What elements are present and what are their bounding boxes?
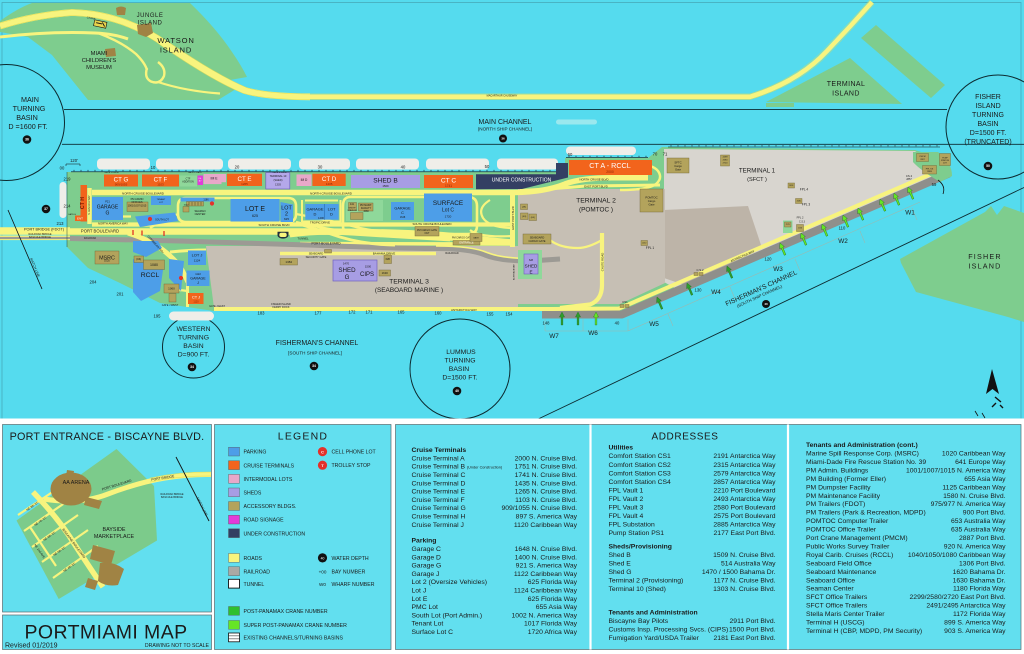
svg-text:BAYSIDE: BAYSIDE [103, 527, 126, 533]
svg-text:PM Admin. Buildings: PM Admin. Buildings [806, 467, 869, 474]
svg-text:Lot E: Lot E [412, 596, 428, 603]
svg-text:34: 34 [190, 365, 194, 369]
svg-text:PM Trailers (Park & Recreatio: PM Trailers (Park & Recreation, MDPD) [806, 510, 926, 517]
svg-text:GATE G WEST: GATE G WEST [104, 171, 120, 174]
svg-text:C.S.2: C.S.2 [697, 268, 704, 272]
svg-text:10: 10 [151, 165, 156, 170]
svg-text:MAIN: MAIN [21, 95, 39, 104]
svg-text:1103 N. Cruise Blvd.: 1103 N. Cruise Blvd. [515, 497, 577, 504]
svg-text:Garage D: Garage D [412, 554, 442, 561]
svg-text:1120: 1120 [193, 300, 199, 303]
svg-text:ENT: ENT [77, 217, 83, 221]
svg-text:2911 Port Blvd.: 2911 Port Blvd. [730, 618, 776, 625]
svg-text:36: 36 [25, 138, 29, 142]
svg-text:441: 441 [350, 203, 355, 206]
svg-text:RAILROAD: RAILROAD [445, 251, 458, 255]
svg-text:20: 20 [235, 165, 240, 170]
svg-text:P21: P21 [105, 200, 110, 204]
svg-text:2315 Antarctica Way: 2315 Antarctica Way [713, 462, 776, 469]
svg-text:SOUTH CRUISE BOULEVARD: SOUTH CRUISE BOULEVARD [413, 222, 452, 226]
svg-text:2000: 2000 [606, 170, 614, 174]
svg-text:WATSON: WATSON [157, 36, 194, 45]
svg-text:NORTH CRUISE BOULEVARD: NORTH CRUISE BOULEVARD [122, 191, 165, 195]
svg-text:ADDITION: ADDITION [182, 181, 194, 184]
svg-text:SFCT Office Trailers: SFCT Office Trailers [806, 594, 868, 601]
svg-text:Gate: Gate [648, 202, 655, 206]
svg-text:Royal Carib. Cruises (RCCL): Royal Carib. Cruises (RCCL) [806, 552, 893, 559]
svg-text:1124: 1124 [194, 259, 201, 263]
svg-text:641 Europe Way: 641 Europe Way [955, 459, 1006, 466]
svg-text:625 Florida Way: 625 Florida Way [528, 596, 578, 603]
svg-text:S. AMERICA WAY: S. AMERICA WAY [88, 195, 91, 215]
svg-text:Comfort Station CS4: Comfort Station CS4 [609, 479, 672, 486]
svg-text:Sheds/Provisioning: Sheds/Provisioning [609, 544, 672, 551]
svg-text:(TRUNCATED): (TRUNCATED) [964, 139, 1011, 146]
svg-text:975/977 N. America Way: 975/977 N. America Way [931, 501, 1007, 508]
svg-text:1500 Port Blvd.: 1500 Port Blvd. [729, 627, 776, 634]
svg-text:PORT BRIDGE (FDOT): PORT BRIDGE (FDOT) [24, 228, 65, 232]
svg-text:117: 117 [199, 181, 202, 183]
svg-text:(63): (63) [522, 216, 526, 218]
svg-text:172: 172 [349, 310, 357, 315]
svg-text:ISLAND: ISLAND [160, 46, 192, 55]
svg-text:UNDER CONSTRUCTION: UNDER CONSTRUCTION [492, 178, 552, 184]
svg-text:TENANT: TENANT [157, 198, 166, 201]
svg-text:AA ARENA: AA ARENA [63, 480, 90, 486]
svg-text:CIPS: CIPS [360, 272, 374, 278]
svg-text:Miami-Dade Fire Rescue Station: Miami-Dade Fire Rescue Station No. 39 [806, 459, 926, 466]
svg-text:SOUTH CRUISE BLVD: SOUTH CRUISE BLVD [258, 223, 290, 227]
svg-text:FPL Substation: FPL Substation [609, 522, 655, 529]
svg-text:34: 34 [312, 364, 316, 368]
svg-text:SHED: SHED [338, 267, 356, 274]
svg-text:BASIN: BASIN [16, 113, 38, 122]
svg-text:W1: W1 [905, 210, 915, 217]
svg-text:1470: 1470 [343, 262, 350, 266]
svg-text:1384: 1384 [285, 260, 292, 264]
svg-text:IM D: IM D [301, 178, 308, 182]
svg-text:1103: 1103 [157, 182, 164, 186]
svg-text:C.S.3: C.S.3 [799, 221, 806, 224]
svg-text:FISHER: FISHER [975, 94, 1001, 101]
svg-text:2000 N. Cruise Blvd.: 2000 N. Cruise Blvd. [515, 455, 577, 462]
svg-text:PORT BOULEVARD: PORT BOULEVARD [311, 241, 341, 245]
svg-text:2299: 2299 [723, 157, 729, 159]
svg-text:Lot C: Lot C [442, 208, 454, 214]
svg-text:WESTERN: WESTERN [177, 326, 211, 333]
svg-text:(SFCT ): (SFCT ) [747, 177, 767, 183]
svg-text:635 Australia Way: 635 Australia Way [951, 527, 1006, 534]
svg-text:TERMINAL: TERMINAL [827, 81, 866, 88]
svg-text:Garage G: Garage G [412, 563, 442, 570]
svg-text:C: C [321, 449, 324, 454]
svg-text:[SOUTH SHIP CHANNEL]: [SOUTH SHIP CHANNEL] [288, 351, 342, 356]
svg-text:GATE: GATE [473, 236, 479, 239]
svg-text:Surface Lot C: Surface Lot C [412, 629, 454, 636]
svg-text:CELL PHONE LOT: CELL PHONE LOT [332, 450, 377, 456]
svg-text:(04): (04) [136, 257, 141, 261]
svg-text:W7: W7 [549, 333, 559, 340]
svg-text:171: 171 [366, 310, 374, 315]
svg-text:Cruise Terminal G: Cruise Terminal G [412, 505, 466, 512]
svg-text:Public Works Survey Trailer: Public Works Survey Trailer [806, 543, 890, 550]
svg-text:ACCESSORY BLDGS.: ACCESSORY BLDGS. [244, 504, 297, 510]
svg-text:CS1: CS1 [622, 300, 628, 304]
svg-text:1306 Port Blvd.: 1306 Port Blvd. [959, 560, 1006, 567]
svg-text:2575: 2575 [786, 224, 790, 226]
svg-text:2720: 2720 [723, 162, 729, 164]
svg-text:1741: 1741 [445, 184, 452, 188]
svg-text:1741 N. Cruise Blvd.: 1741 N. Cruise Blvd. [515, 472, 577, 479]
svg-text:EXISTING CHANNELS/TURNING BASI: EXISTING CHANNELS/TURNING BASINS [244, 636, 344, 642]
svg-text:148: 148 [543, 321, 551, 326]
svg-text:214: 214 [64, 204, 72, 209]
svg-text:BASIN: BASIN [183, 343, 203, 350]
svg-text:1122: 1122 [195, 272, 201, 276]
svg-text:Cruise Terminal A: Cruise Terminal A [412, 455, 466, 462]
svg-text:CT H: CT H [80, 197, 86, 209]
svg-text:D=1500 FT.: D=1500 FT. [442, 375, 477, 382]
svg-text:1080: 1080 [150, 263, 158, 267]
svg-text:G: G [345, 274, 350, 281]
svg-text:SHED: SHED [525, 264, 538, 269]
svg-text:DRAWING NOT TO SCALE: DRAWING NOT TO SCALE [145, 643, 210, 649]
svg-text:NORTH CRUISE BOULEVARD: NORTH CRUISE BOULEVARD [310, 191, 353, 195]
svg-text:2857 Antarctica Way: 2857 Antarctica Way [713, 479, 776, 486]
svg-text:ROADS: ROADS [244, 556, 263, 562]
svg-text:1500: 1500 [365, 265, 372, 269]
svg-text:BAY NUMBER: BAY NUMBER [332, 569, 366, 575]
svg-text:Comfort Station CS1: Comfort Station CS1 [609, 453, 672, 460]
svg-text:195: 195 [154, 314, 162, 319]
svg-text:Parking: Parking [412, 538, 437, 545]
svg-text:FPL Vault 1: FPL Vault 1 [609, 487, 644, 494]
svg-text:WATER DEPTH: WATER DEPTH [332, 556, 369, 562]
svg-text:NORTH CRUISE BLVD: NORTH CRUISE BLVD [579, 178, 608, 182]
svg-text:ANTARCTICA WAY: ANTARCTICA WAY [451, 308, 477, 312]
svg-text:FPL SS: FPL SS [926, 168, 934, 170]
svg-text:30: 30 [318, 165, 323, 170]
svg-text:PM Dumpster Facility: PM Dumpster Facility [806, 484, 871, 491]
svg-text:120': 120' [70, 158, 78, 163]
svg-text:W2: W2 [838, 238, 848, 245]
svg-text:TUNNEL: TUNNEL [297, 236, 309, 240]
svg-text:2210 Port Boulevard: 2210 Port Boulevard [714, 487, 776, 494]
svg-text:204: 204 [90, 280, 98, 285]
svg-text:1303: 1303 [275, 183, 281, 187]
svg-text:MAIN CHANNEL: MAIN CHANNEL [479, 119, 532, 126]
svg-text:40: 40 [401, 165, 406, 170]
svg-text:2177 East Port Blvd.: 2177 East Port Blvd. [714, 530, 776, 537]
svg-text:514 Australia Way: 514 Australia Way [721, 561, 776, 568]
svg-text:UNDER CONSTRUCTION: UNDER CONSTRUCTION [244, 531, 306, 537]
svg-text:FPL 3: FPL 3 [802, 203, 811, 207]
svg-text:RAILROAD: RAILROAD [244, 569, 271, 575]
svg-text:00: 00 [60, 166, 65, 171]
svg-text:1580: 1580 [363, 210, 369, 213]
svg-text:(64): (64) [531, 217, 535, 219]
svg-text:2885: 2885 [927, 171, 933, 173]
svg-text:LOT J: LOT J [192, 253, 203, 258]
svg-text:J: J [197, 281, 199, 285]
svg-text:GATE F EAST: GATE F EAST [188, 171, 203, 174]
svg-text:1020: 1020 [104, 259, 110, 263]
svg-text:2887 Port Blvd.: 2887 Port Blvd. [959, 535, 1006, 542]
svg-text:1630: 1630 [382, 271, 389, 275]
svg-text:PM Building (Former Eller): PM Building (Former Eller) [806, 476, 886, 483]
svg-text:WHARF NUMBER: WHARF NUMBER [332, 582, 375, 588]
svg-text:Revised 01/2019: Revised 01/2019 [5, 643, 58, 650]
svg-text:G: G [106, 211, 110, 217]
svg-text:FPL 1: FPL 1 [646, 246, 655, 250]
svg-text:CRUISE TERMINALS: CRUISE TERMINALS [244, 463, 295, 469]
svg-text:1265: 1265 [241, 182, 248, 186]
svg-text:Garage J: Garage J [412, 571, 440, 578]
svg-text:1580 N. Cruise Blvd.: 1580 N. Cruise Blvd. [943, 493, 1005, 500]
svg-text:155: 155 [487, 312, 495, 317]
svg-text:TERMINAL 1: TERMINAL 1 [739, 168, 776, 175]
svg-text:C: C [401, 211, 404, 215]
svg-text:OFFICES: OFFICES [131, 200, 143, 204]
svg-text:EAST PORT BLVD: EAST PORT BLVD [584, 184, 608, 188]
svg-text:Pump Station PS1: Pump Station PS1 [609, 530, 665, 537]
svg-text:120: 120 [765, 257, 773, 262]
svg-text:1648: 1648 [400, 216, 406, 219]
svg-text:TROPIC DRIVE: TROPIC DRIVE [310, 221, 330, 225]
svg-text:130: 130 [695, 288, 703, 293]
svg-text:JUNGLE: JUNGLE [137, 13, 164, 19]
svg-text:40: 40 [615, 321, 620, 326]
svg-text:1040/1050/1080 Caribbean Way: 1040/1050/1080 Caribbean Way [908, 552, 1006, 559]
svg-text:Shed E: Shed E [609, 561, 632, 568]
svg-text:213: 213 [57, 221, 65, 226]
svg-text:W3: W3 [773, 266, 783, 273]
svg-text:TURNING: TURNING [972, 112, 1004, 119]
svg-text:2580: 2580 [723, 159, 729, 161]
svg-text:TURNING: TURNING [13, 104, 46, 113]
svg-text:TERMINAL 10: TERMINAL 10 [270, 174, 287, 178]
svg-text:50: 50 [485, 164, 490, 169]
svg-text:36: 36 [501, 137, 505, 141]
svg-text:1124 Caribbean Way: 1124 Caribbean Way [514, 588, 578, 595]
svg-text:628: 628 [529, 259, 534, 262]
svg-text:PORTMIAMI MAP: PORTMIAMI MAP [24, 622, 187, 644]
svg-text:Shed B: Shed B [609, 552, 632, 559]
svg-text:1720: 1720 [445, 215, 452, 219]
svg-text:Marine Spill Response Corp. (M: Marine Spill Response Corp. (MSRC) [806, 451, 919, 458]
svg-text:BASIN: BASIN [449, 366, 469, 373]
svg-text:CT J: CT J [192, 295, 200, 300]
svg-text:SOUTH LOT: SOUTH LOT [155, 219, 169, 222]
svg-text:RCCL: RCCL [141, 272, 160, 279]
svg-text:1630 Bahama Dr.: 1630 Bahama Dr. [953, 577, 1006, 584]
svg-text:PORT ENTRANCE - BISCAYNE BLVD.: PORT ENTRANCE - BISCAYNE BLVD. [10, 431, 205, 443]
svg-text:1303 N. Cruise Blvd.: 1303 N. Cruise Blvd. [713, 586, 775, 593]
svg-text:Cruise Terminal B (Under Const: Cruise Terminal B (Under Construction) [412, 464, 503, 471]
svg-text:1017 Florida Way: 1017 Florida Way [524, 621, 578, 628]
svg-text:Comfort Station CS3: Comfort Station CS3 [609, 470, 672, 477]
svg-text:Utilities: Utilities [609, 445, 634, 452]
svg-text:Shed G: Shed G [609, 569, 632, 576]
svg-text:Comfort Station CS2: Comfort Station CS2 [609, 462, 672, 469]
svg-text:FPL 4: FPL 4 [800, 188, 809, 192]
svg-text:POMTOC Computer Trailer: POMTOC Computer Trailer [806, 518, 889, 525]
svg-text:60: 60 [568, 152, 573, 157]
svg-text:MUSEUM: MUSEUM [86, 65, 112, 71]
svg-text:2575 Port Boulevard: 2575 Port Boulevard [714, 513, 776, 520]
svg-text:2210: 2210 [642, 243, 646, 245]
svg-text:W6: W6 [588, 330, 598, 337]
svg-text:40: 40 [321, 557, 325, 561]
svg-text:2885 Antarctica Way: 2885 Antarctica Way [713, 522, 776, 529]
svg-text:177: 177 [315, 311, 323, 316]
svg-text:1400 N. Cruise Blvd.: 1400 N. Cruise Blvd. [515, 554, 577, 561]
svg-text:2580 Port Boulevard: 2580 Port Boulevard [714, 505, 776, 512]
svg-text:ISLAND: ISLAND [975, 103, 1000, 110]
svg-text:SECURITY GATE: SECURITY GATE [306, 255, 327, 259]
svg-text:625: 625 [252, 214, 258, 218]
svg-text:MIAMI: MIAMI [91, 51, 108, 57]
svg-text:899 S. America Way: 899 S. America Way [944, 620, 1006, 627]
svg-text:NORTH AMERICA WAY: NORTH AMERICA WAY [98, 221, 128, 225]
svg-text:Lot 2 (Oversize Vehicles): Lot 2 (Oversize Vehicles) [412, 579, 488, 586]
svg-text:1435: 1435 [326, 182, 333, 186]
svg-text:219: 219 [64, 177, 72, 182]
svg-text:1435 N. Cruise Blvd.: 1435 N. Cruise Blvd. [515, 480, 577, 487]
svg-text:Tenants and Administration (co: Tenants and Administration (cont.) [806, 442, 918, 449]
svg-text:ISLAND: ISLAND [968, 262, 1001, 271]
svg-text:ADDRESSES: ADDRESSES [651, 432, 718, 443]
svg-text:37: 37 [44, 207, 48, 211]
svg-text:D=1500 FT.: D=1500 FT. [970, 130, 1006, 137]
svg-text:LOT: LOT [159, 202, 164, 204]
svg-text:1001/1007/1015: 1001/1007/1015 [128, 204, 147, 208]
svg-text:BAHAMA DRIVE: BAHAMA DRIVE [373, 252, 396, 256]
svg-text:Stella Maris Center Trailer: Stella Maris Center Trailer [806, 611, 885, 618]
svg-text:183: 183 [258, 311, 266, 316]
svg-text:FISHERMAN'S CHANNEL: FISHERMAN'S CHANNEL [276, 340, 359, 347]
svg-text:PM Trailers (FDOT): PM Trailers (FDOT) [806, 501, 865, 508]
svg-text:1002: 1002 [184, 205, 190, 207]
svg-text:2191 Antarctica Way: 2191 Antarctica Way [713, 453, 776, 460]
svg-text:1400: 1400 [318, 216, 324, 220]
svg-text:2491/2495 Antarctica Way: 2491/2495 Antarctica Way [926, 603, 1006, 610]
svg-text:625: 625 [284, 217, 289, 221]
svg-text:BASCULE BRIDGE: BASCULE BRIDGE [29, 236, 51, 239]
svg-text:South Lot (Port Admin.): South Lot (Port Admin.) [412, 612, 483, 619]
svg-text:1120 Caribbean Way: 1120 Caribbean Way [514, 522, 578, 529]
svg-text:2857: 2857 [906, 178, 912, 181]
svg-text:AUSTRALIA WAY: AUSTRALIA WAY [513, 263, 516, 280]
svg-text:1509 N. Cruise Blvd.: 1509 N. Cruise Blvd. [713, 552, 775, 559]
svg-text:1001/1007/1015 N. America Way: 1001/1007/1015 N. America Way [906, 467, 1006, 474]
svg-text:FPL Vault 3: FPL Vault 3 [609, 505, 644, 512]
svg-text:165: 165 [398, 310, 406, 315]
svg-text:SHEDS: SHEDS [244, 491, 262, 497]
svg-text:62B: 62B [386, 258, 391, 261]
svg-text:MARKETPLACE: MARKETPLACE [94, 534, 135, 540]
svg-text:FPL 2: FPL 2 [797, 216, 804, 220]
svg-text:(48): (48) [522, 207, 526, 209]
svg-text:PM CARGO GATE: PM CARGO GATE [452, 237, 472, 240]
svg-text:655 Asia Way: 655 Asia Way [964, 476, 1006, 483]
svg-text:110: 110 [839, 226, 846, 231]
svg-text:OUT: OUT [424, 232, 430, 235]
svg-text:Terminal 2 (Provisioning): Terminal 2 (Provisioning) [609, 578, 684, 585]
svg-text:SURFACE: SURFACE [433, 200, 463, 207]
svg-text:SUPER POST-PANAMAX CRANE NUMBE: SUPER POST-PANAMAX CRANE NUMBER [244, 623, 348, 629]
svg-text:CENTER: CENTER [195, 212, 206, 216]
svg-text:625 Florida Way: 625 Florida Way [528, 579, 578, 586]
svg-text:1060: 1060 [168, 287, 175, 291]
svg-text:2579 Antarctica Way: 2579 Antarctica Way [713, 470, 776, 477]
svg-text:BASIN: BASIN [977, 121, 998, 128]
svg-text:1265 N. Cruise Blvd.: 1265 N. Cruise Blvd. [515, 489, 577, 496]
svg-text:CHUTE ROAD: CHUTE ROAD [601, 253, 605, 272]
svg-text:Cruise Terminal C: Cruise Terminal C [412, 472, 466, 479]
svg-text:D =1600 FT.: D =1600 FT. [8, 122, 47, 131]
svg-text:1020 Caribbean Way: 1020 Caribbean Way [942, 451, 1006, 458]
svg-text:1470 / 1500 Bahama Dr.: 1470 / 1500 Bahama Dr. [702, 569, 776, 576]
svg-text:W4: W4 [711, 289, 721, 296]
svg-text:920 N. America Way: 920 N. America Way [944, 543, 1006, 550]
svg-text:WWTP: WWTP [349, 207, 356, 209]
svg-text:ISLAND: ISLAND [832, 91, 860, 98]
svg-text:GATE J WEST: GATE J WEST [162, 304, 179, 307]
svg-text:STATION: STATION [347, 209, 357, 212]
svg-text:Cruise Terminal H: Cruise Terminal H [412, 514, 466, 521]
svg-text:1186: 1186 [203, 199, 209, 202]
svg-text:Port Crane Management (PMCM): Port Crane Management (PMCM) [806, 535, 908, 542]
svg-text:TUNNEL: TUNNEL [244, 582, 265, 588]
svg-text:POMTOC Office Trailer: POMTOC Office Trailer [806, 527, 877, 534]
svg-text:CARGO GATE: CARGO GATE [528, 239, 545, 243]
svg-text:Seaboard Field Office: Seaboard Field Office [806, 560, 872, 567]
svg-text:D: D [314, 212, 317, 217]
svg-text:2299/2580/2720 East Port Blvd.: 2299/2580/2720 East Port Blvd. [910, 594, 1006, 601]
svg-text:903 S. America Way: 903 S. America Way [944, 628, 1006, 635]
svg-text:PARKING: PARKING [244, 450, 267, 456]
svg-text:Cruise Terminals: Cruise Terminals [412, 447, 467, 454]
svg-text:FPL Vault 4: FPL Vault 4 [609, 513, 644, 520]
svg-text:1509: 1509 [382, 184, 389, 188]
svg-text:Biscayne Bay Pilots: Biscayne Bay Pilots [609, 618, 669, 625]
svg-text:40: 40 [764, 302, 768, 306]
svg-text:2580: 2580 [797, 201, 801, 203]
svg-text:FERRY DOCK: FERRY DOCK [273, 305, 290, 309]
svg-text:CHILDREN'S: CHILDREN'S [82, 58, 117, 64]
svg-text:653 Australia Way: 653 Australia Way [951, 518, 1006, 525]
svg-text:1177 N. Cruise Blvd.: 1177 N. Cruise Blvd. [714, 578, 776, 585]
svg-text:2493 Antarctica Way: 2493 Antarctica Way [713, 496, 776, 503]
svg-text:Lot J: Lot J [412, 588, 427, 595]
svg-text:Terminal H (CBP, MDPD, PM Secu: Terminal H (CBP, MDPD, PM Security) [806, 628, 922, 635]
svg-text:E: E [529, 270, 532, 275]
svg-text:IM E: IM E [211, 176, 219, 180]
svg-text:70: 70 [653, 152, 658, 157]
svg-text:2177: 2177 [943, 162, 947, 164]
svg-text:(SEABOARD MARINE ): (SEABOARD MARINE ) [375, 287, 443, 294]
svg-text:Tenant Lot: Tenant Lot [412, 621, 444, 628]
svg-text:BASCULE BRIDGE: BASCULE BRIDGE [161, 496, 183, 499]
svg-text:900 Port Blvd.: 900 Port Blvd. [963, 510, 1006, 517]
svg-text:Seaboard Maintenance: Seaboard Maintenance [806, 569, 877, 576]
svg-text:INTERMODAL LOTS: INTERMODAL LOTS [244, 477, 293, 483]
svg-text:655 Asia Way: 655 Asia Way [536, 604, 578, 611]
svg-text:PORT BOULEVARD: PORT BOULEVARD [81, 229, 119, 234]
svg-text:LEGEND: LEGEND [278, 431, 328, 443]
svg-text:Fumigation Yard/USDA Trailer: Fumigation Yard/USDA Trailer [609, 635, 700, 642]
